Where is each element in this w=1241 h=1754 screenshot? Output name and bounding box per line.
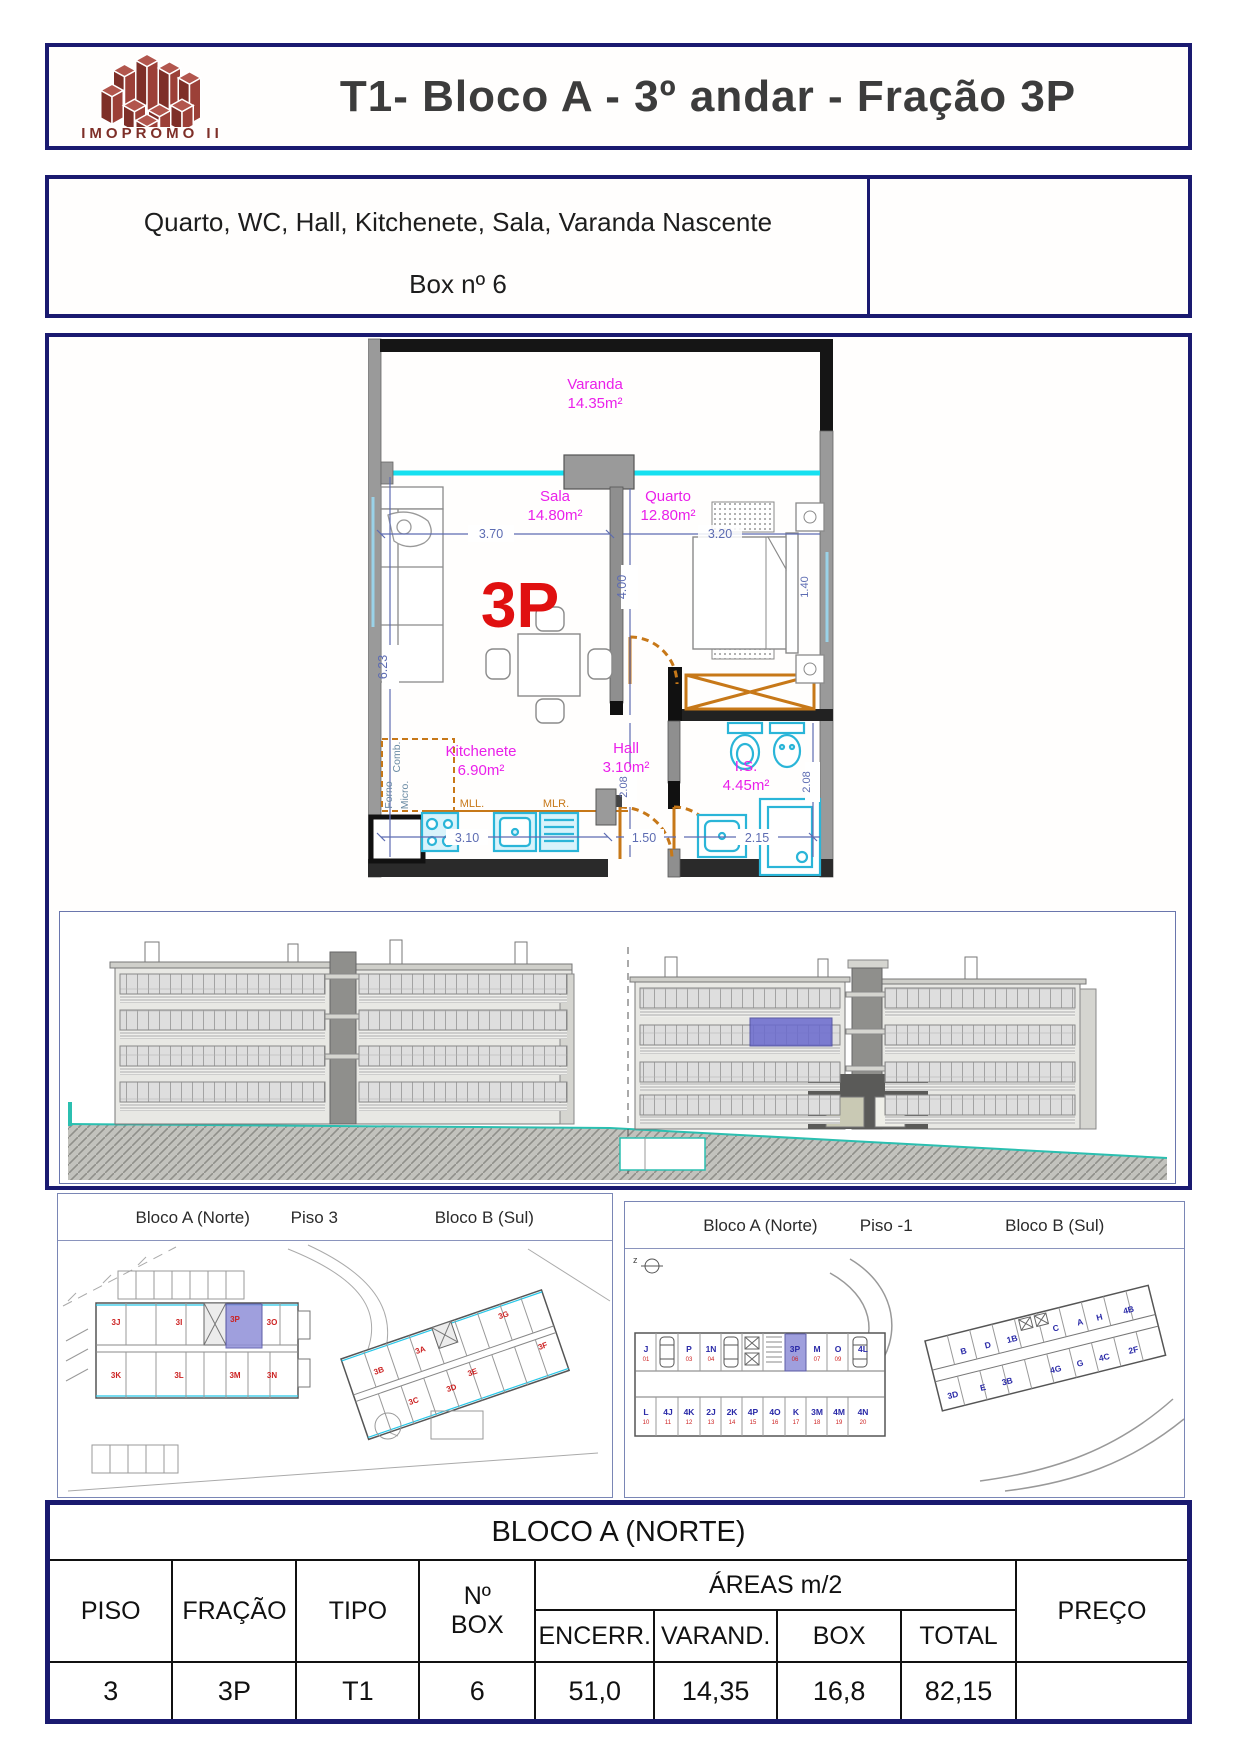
pillar [564, 455, 634, 489]
col-piso: PISO [48, 1560, 173, 1662]
elevation-window-bands [120, 974, 1075, 1124]
elevations-box [59, 911, 1176, 1184]
kitchen-appliances [422, 813, 578, 851]
unit-label: 16 [772, 1420, 779, 1426]
unit-label: 12 [686, 1420, 693, 1426]
bloco-a-building [96, 1303, 310, 1398]
unit-label: 4L [858, 1344, 868, 1354]
elevation-drawing [60, 912, 1175, 1183]
box-number-text: Box nº 6 [49, 269, 867, 300]
unit-label: 3P [230, 1315, 240, 1324]
company-logo: IMOPROMO II [77, 49, 227, 144]
dim-window: 1.40 [799, 576, 811, 597]
value-fracao: 3P [172, 1662, 296, 1722]
dim-sala-width: 3.70 [479, 527, 503, 541]
highlighted-unit [750, 1018, 832, 1046]
north-arrow-icon: z [633, 1255, 663, 1273]
shaft [371, 817, 423, 861]
dim-is-height: 2.08 [801, 771, 813, 792]
table-title: BLOCO A (NORTE) [48, 1503, 1190, 1561]
label-varanda-area: 14.35m² [567, 395, 622, 412]
unit-label: K [793, 1407, 800, 1417]
ground-structure [620, 1138, 705, 1170]
fraction-table: BLOCO A (NORTE) PISO FRAÇÃO TIPO Nº BOX … [45, 1500, 1192, 1724]
bloco-b-building: 3B3A3G3E3C3D3F [341, 1290, 569, 1439]
unit-label: 1N [706, 1344, 717, 1354]
bathroom-fixtures [698, 723, 820, 875]
label-is: I.S. [735, 758, 758, 775]
dim-kitchen: 3.10 [455, 831, 479, 845]
floor-plan: 3.70 3.20 4.00 6.23 2.08 2.08 1.40 3.10 … [368, 337, 835, 884]
value-preco [1016, 1662, 1190, 1722]
wall-hall-is [668, 721, 680, 783]
unit-label: 10 [643, 1420, 650, 1426]
unit-label: 07 [814, 1357, 821, 1363]
site-plan-piso3-drawing: 3J3I3P3O 3K3L3M3N 3B3A3G3E3C3D3F [58, 1241, 612, 1497]
unit-label: 04 [708, 1357, 715, 1363]
dim-hall-height: 2.08 [618, 776, 630, 797]
unit-label: 4O [769, 1407, 781, 1417]
value-piso: 3 [48, 1662, 173, 1722]
unit-label: 3K [111, 1371, 121, 1380]
header: IMOPROMO II T1- Bloco A - 3º andar - Fra… [45, 43, 1192, 150]
value-encerr: 51,0 [535, 1662, 654, 1722]
label-kitchenete-area: 6.90m² [458, 762, 505, 779]
unit-label: 18 [814, 1420, 821, 1426]
site-plan-header: Bloco A (Norte) Piso 3 Bloco B (Sul) [58, 1194, 612, 1241]
label-mlr: MLR. [543, 798, 569, 810]
counter-block [596, 789, 616, 825]
bloco-b-label: Bloco B (Sul) [435, 1208, 534, 1228]
unit-label: 3M [811, 1407, 823, 1417]
logo-cubes-icon [77, 49, 227, 127]
unit-label: 17 [793, 1420, 800, 1426]
value-nbox: 6 [419, 1662, 535, 1722]
label-mll: MLL. [460, 798, 484, 810]
page: { "header": { "logo_text": "IMOPROMO II"… [0, 0, 1241, 1754]
dim-hall: 1.50 [632, 831, 656, 845]
unit-label: 3M [229, 1371, 240, 1380]
bloco-a-label: Bloco A (Norte) [136, 1208, 250, 1228]
logo-text: IMOPROMO II [77, 125, 227, 142]
site-plan-piso-1: Bloco A (Norte) Piso -1 Bloco B (Sul) z [624, 1201, 1185, 1498]
site-plan-piso3: Bloco A (Norte) Piso 3 Bloco B (Sul) [57, 1193, 613, 1498]
unit-label-3p: 3P [481, 569, 559, 641]
wall-right [820, 431, 833, 877]
col-total: TOTAL [901, 1610, 1016, 1662]
unit-label: 4P [748, 1407, 759, 1417]
value-box: 16,8 [777, 1662, 901, 1722]
unit-label: P [686, 1344, 692, 1354]
unit-label: 09 [835, 1357, 842, 1363]
unit-label: M [813, 1344, 820, 1354]
unit-label: 20 [860, 1420, 867, 1426]
col-fracao: FRAÇÃO [172, 1560, 296, 1662]
unit-label: 4M [833, 1407, 845, 1417]
bloco-a-label: Bloco A (Norte) [703, 1216, 817, 1236]
label-forno: Forno [383, 781, 395, 809]
page-title: T1- Bloco A - 3º andar - Fração 3P [234, 47, 1182, 146]
wall-top [380, 339, 833, 352]
unit-label: 4J [663, 1407, 673, 1417]
unit-label: 4K [684, 1407, 696, 1417]
wall-corner [820, 339, 833, 431]
dim-quarto-height: 4.00 [615, 575, 629, 599]
unit-label: 2J [706, 1407, 716, 1417]
col-preco: PREÇO [1016, 1560, 1190, 1662]
label-varanda: Varanda [567, 376, 623, 393]
value-varand: 14,35 [654, 1662, 777, 1722]
highlighted-unit-piso3 [226, 1304, 262, 1348]
label-sala: Sala [540, 488, 571, 505]
value-total: 82,15 [901, 1662, 1016, 1722]
label-kitchenete: Kitchenete [446, 743, 517, 760]
label-quarto: Quarto [645, 488, 691, 505]
dim-quarto-width: 3.20 [708, 527, 732, 541]
unit-label: 13 [708, 1420, 715, 1426]
site-plan-header: Bloco A (Norte) Piso -1 Bloco B (Sul) [625, 1202, 1184, 1249]
unit-label: L [643, 1407, 648, 1417]
bloco-b-garage: BD1BCAH4B 3DE3B4GG4C2F [925, 1285, 1166, 1411]
ground-hatch [68, 1124, 1167, 1180]
unit-label: 15 [750, 1420, 757, 1426]
label-micro: Micro. [399, 781, 411, 810]
col-encerr: ENCERR. [535, 1610, 654, 1662]
label-comb: Comb. [391, 742, 403, 773]
unit-label: 2K [727, 1407, 739, 1417]
unit-label: 3P [790, 1344, 801, 1354]
col-box: BOX [777, 1610, 901, 1662]
unit-label: 14 [729, 1420, 736, 1426]
unit-label: 3J [112, 1318, 121, 1327]
unit-label: 4N [858, 1407, 869, 1417]
label-hall-area: 3.10m² [603, 759, 650, 776]
svg-text:z: z [633, 1255, 638, 1265]
col-areas: ÁREAS m/2 [535, 1560, 1016, 1610]
col-tipo: TIPO [296, 1560, 419, 1662]
col-nbox: Nº BOX [419, 1560, 535, 1662]
unit-label: 03 [686, 1357, 693, 1363]
col-varand: VARAND. [654, 1610, 777, 1662]
unit-label: 3L [174, 1371, 183, 1380]
dim-left-height: 6.23 [376, 655, 390, 679]
bloco-a-garage [635, 1333, 885, 1436]
unit-label: 01 [643, 1357, 650, 1363]
unit-label: 19 [836, 1420, 843, 1426]
subtitle-cell: Quarto, WC, Hall, Kitchenete, Sala, Vara… [49, 179, 870, 314]
unit-label: 3I [176, 1318, 183, 1327]
drawing-box: 3.70 3.20 4.00 6.23 2.08 2.08 1.40 3.10 … [45, 333, 1192, 1190]
bloco-b-label: Bloco B (Sul) [1005, 1216, 1104, 1236]
unit-label: 11 [665, 1420, 672, 1426]
room-list-text: Quarto, WC, Hall, Kitchenete, Sala, Vara… [49, 207, 867, 238]
unit-label: 3N [267, 1371, 277, 1380]
label-hall: Hall [613, 740, 639, 757]
wall-quarto-is [668, 709, 833, 721]
site-plan-piso-1-drawing: z J01P031N043P0 [625, 1249, 1184, 1497]
unit-label: 3O [267, 1318, 278, 1327]
label-sala-area: 14.80m² [527, 507, 582, 524]
unit-label: 06 [792, 1357, 799, 1363]
label-quarto-area: 12.80m² [640, 507, 695, 524]
label-is-area: 4.45m² [723, 777, 770, 794]
unit-label: J [644, 1344, 649, 1354]
subtitle-box: Quarto, WC, Hall, Kitchenete, Sala, Vara… [45, 175, 1192, 318]
unit-label: O [835, 1344, 842, 1354]
piso-label: Piso -1 [860, 1216, 913, 1236]
dim-is: 2.15 [745, 831, 769, 845]
value-tipo: T1 [296, 1662, 419, 1722]
piso-label: Piso 3 [291, 1208, 338, 1228]
wardrobe [686, 675, 814, 709]
